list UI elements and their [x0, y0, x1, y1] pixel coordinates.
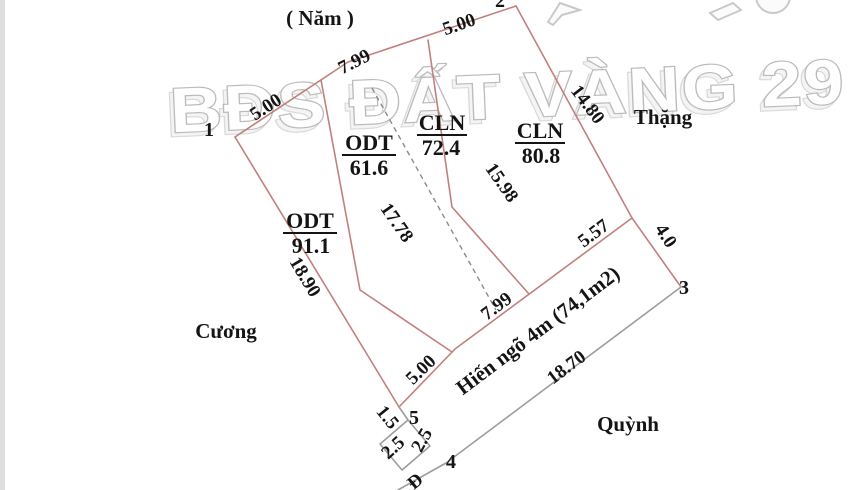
- dim-alley-middle: 7.99: [477, 288, 516, 325]
- dim-top-right: 5.00: [440, 9, 478, 40]
- dim-left-edge: 18.90: [285, 253, 325, 300]
- watermark-fragment-kite-icon: [548, 3, 580, 25]
- neighbor-left: Cương: [195, 319, 257, 343]
- parcel-area-label: 80.8: [522, 143, 561, 168]
- dim-divider-a: 17.78: [376, 199, 418, 246]
- watermark-fragment-circle-icon: [756, 0, 790, 13]
- dim-alley-right: 5.57: [574, 215, 614, 252]
- gray-lines: [380, 287, 681, 490]
- parcel-cln-72-4: CLN 72.4: [417, 110, 467, 160]
- alley-name-label: Hiến ngõ 4m (74,1m2): [451, 261, 624, 400]
- parcel-cln-80-8: CLN 80.8: [515, 118, 565, 168]
- plot-map-canvas: BĐS ĐẤT VÀNG 29 BĐS ĐẤT VÀNG 29: [0, 0, 850, 490]
- watermark-layer: BĐS ĐẤT VÀNG 29 BĐS ĐẤT VÀNG 29: [165, 0, 848, 151]
- cadastral-sketch: BĐS ĐẤT VÀNG 29 BĐS ĐẤT VÀNG 29: [0, 0, 850, 490]
- neighbor-right: Thặng: [634, 105, 693, 129]
- alley-top-line: [399, 218, 632, 407]
- neighbor-bottom: Quỳnh: [597, 412, 659, 436]
- parcel-odt-61-6: ODT 61.6: [342, 130, 396, 180]
- vertex-4: 4: [446, 451, 456, 473]
- parcel-type-label: CLN: [419, 110, 466, 135]
- neighbor-top: ( Năm ): [286, 6, 354, 30]
- vertex-2: 2: [495, 0, 505, 12]
- dim-alley-left: 5.00: [402, 351, 441, 389]
- road-letter: Đ: [403, 469, 427, 490]
- watermark-fragment-parallelogram-icon: [710, 3, 741, 20]
- vertex-1: 1: [204, 119, 214, 141]
- parcel-type-label: ODT: [286, 208, 334, 233]
- vertex-5: 5: [409, 407, 419, 429]
- parcel-area-label: 91.1: [292, 233, 331, 258]
- dim-divider-b: 15.98: [481, 159, 523, 206]
- dim-2-5-left: 2.5: [377, 432, 409, 463]
- parcel-type-label: ODT: [345, 130, 393, 155]
- dim-alley-length: 18.70: [543, 346, 590, 388]
- parcel-type-label: CLN: [517, 118, 564, 143]
- parcel-area-label: 72.4: [422, 135, 461, 160]
- parcel-odt-91-1: ODT 91.1: [283, 208, 337, 258]
- scan-edge-strip: [0, 0, 5, 490]
- vertex-3: 3: [679, 277, 689, 299]
- parcel-area-label: 61.6: [350, 155, 389, 180]
- dim-2-5-right: 2.5: [407, 425, 437, 456]
- dim-right-lower: 4.0: [650, 220, 681, 251]
